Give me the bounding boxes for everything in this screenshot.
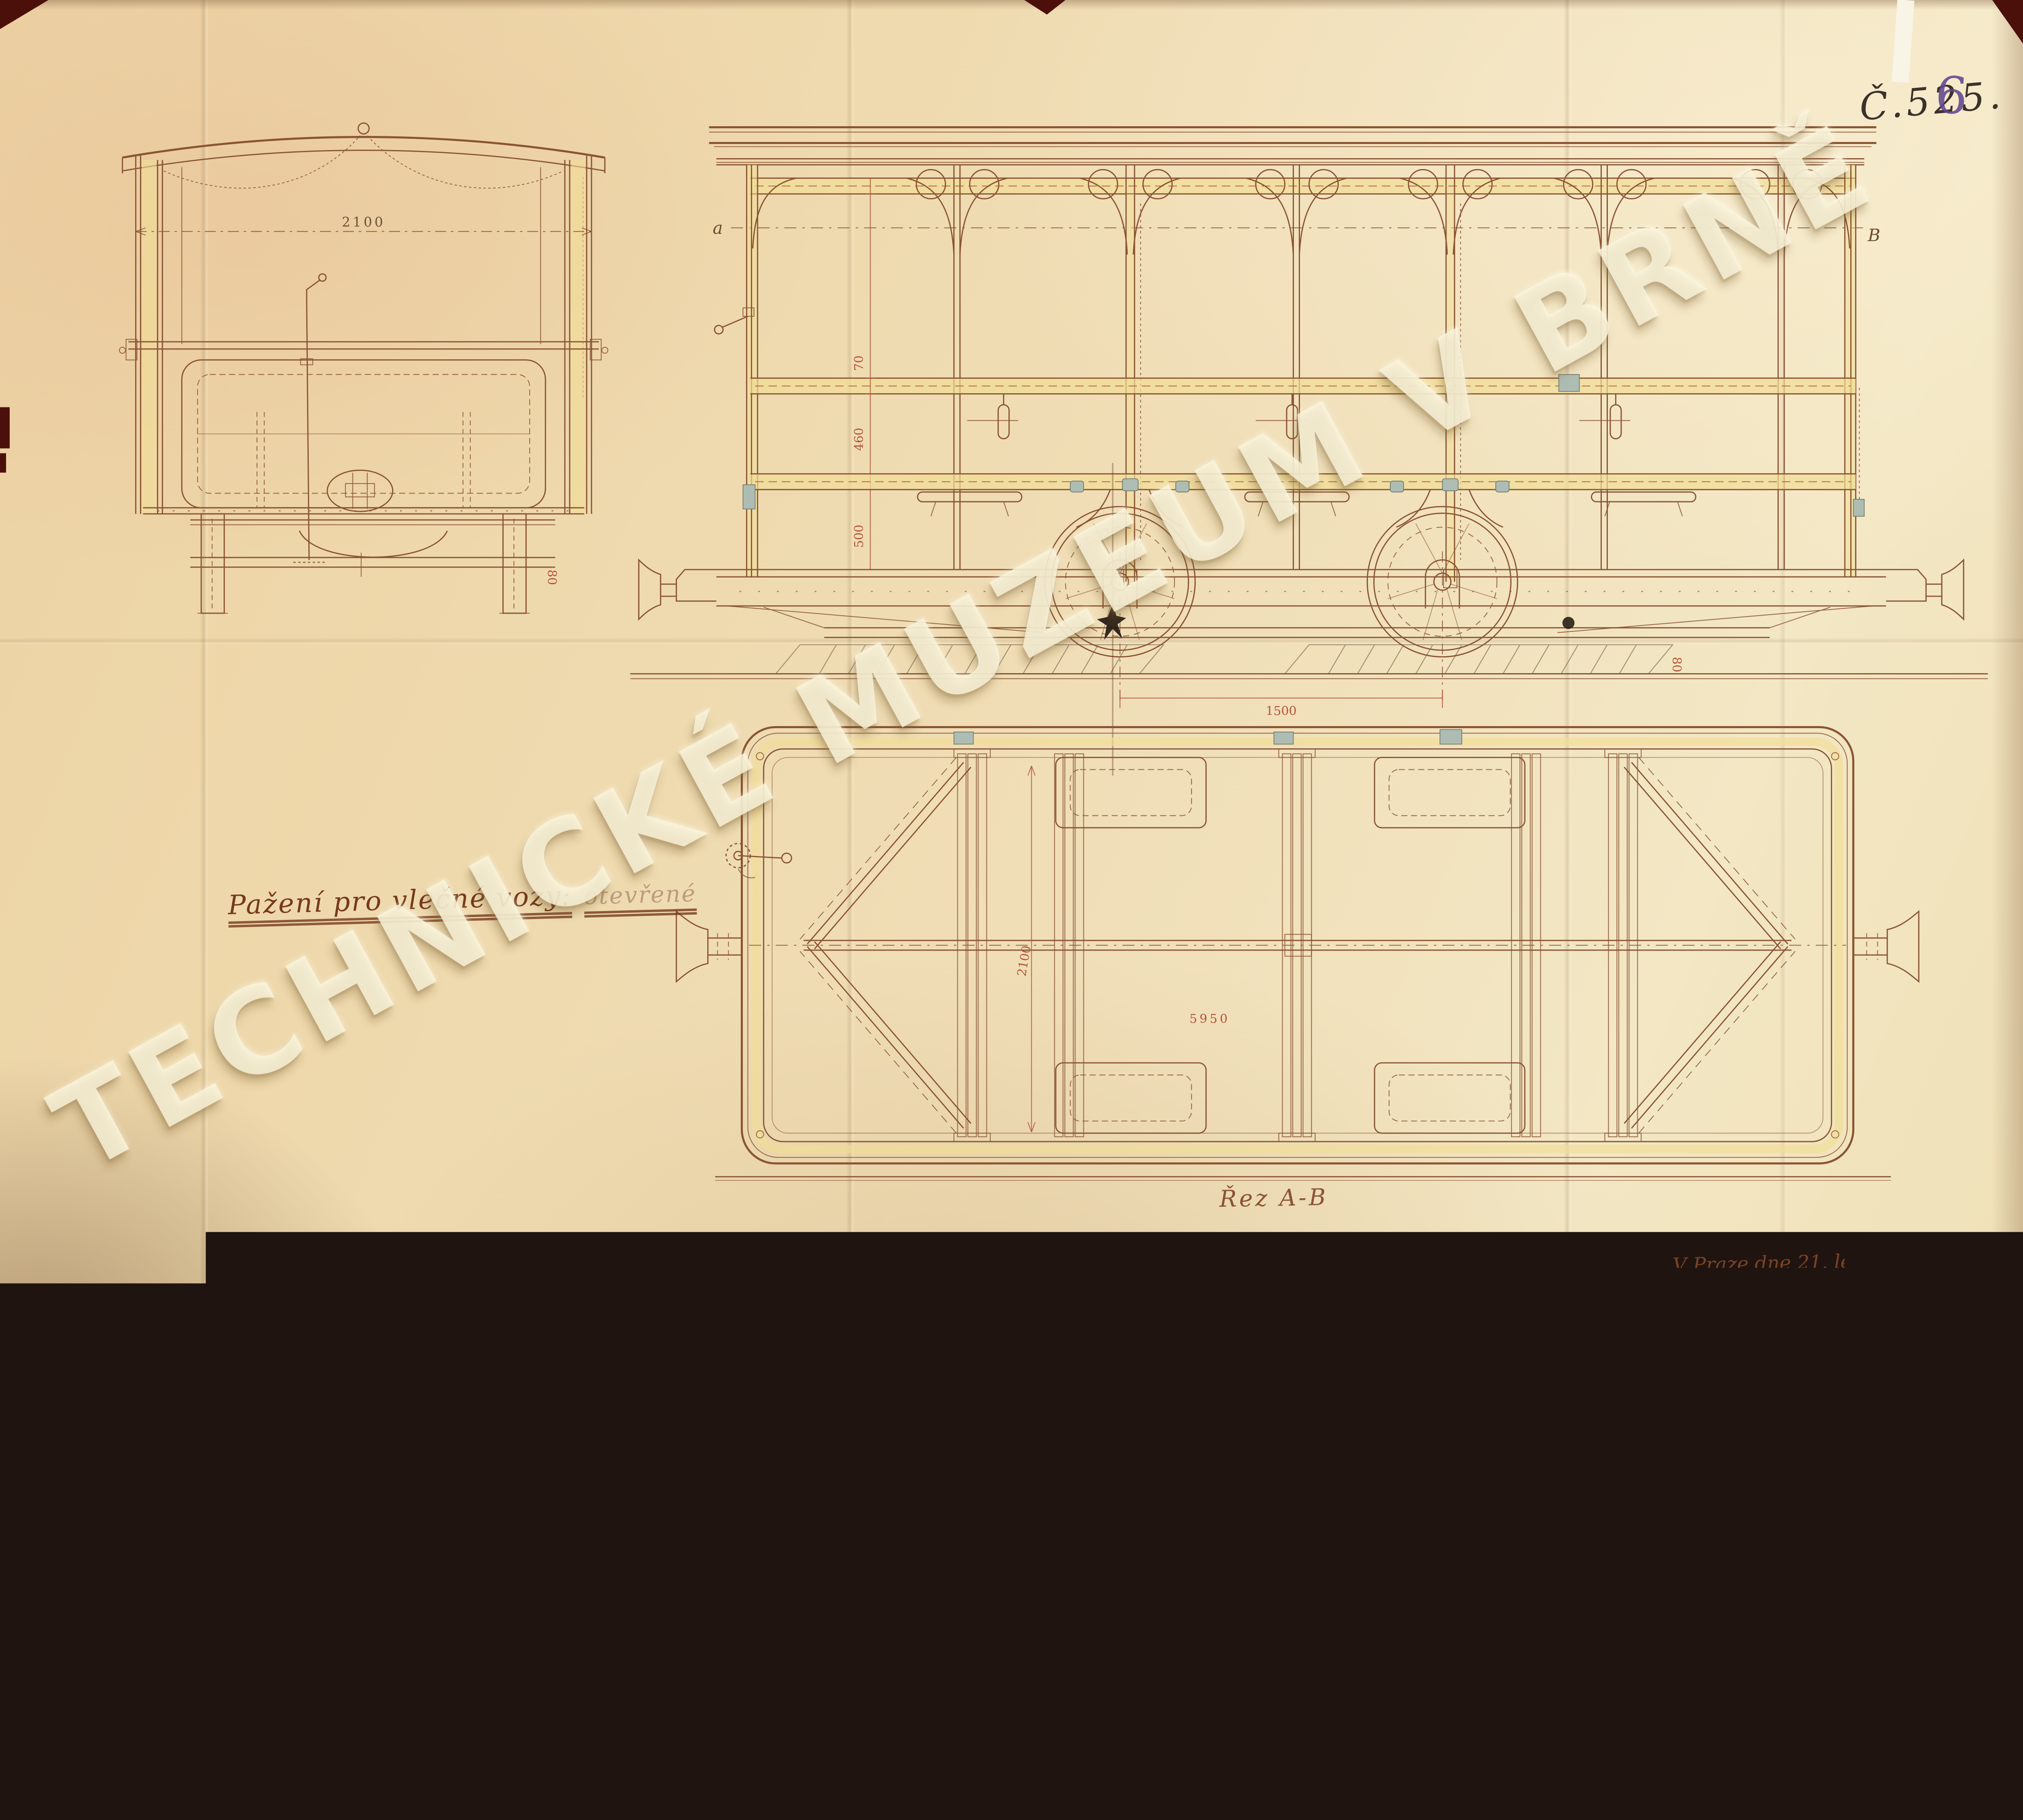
elevation-posts bbox=[746, 165, 1855, 577]
brake-rods bbox=[800, 757, 1795, 1133]
wheelbase-dim: 1500 bbox=[1266, 704, 1296, 718]
plan-view-drawing: 2100 5950 bbox=[676, 727, 1919, 1180]
end-view-drawing: 2100 bbox=[119, 123, 608, 613]
ground-hatch bbox=[776, 645, 1673, 674]
side-elevation-drawing: a B bbox=[630, 127, 1988, 776]
bench-seats bbox=[918, 492, 1696, 516]
drawing-sheet: 2100 bbox=[0, 0, 2023, 1363]
linework-canvas: 2100 bbox=[0, 0, 2023, 1363]
rail-fitting bbox=[1440, 729, 1462, 744]
plan-coupler-left bbox=[676, 911, 742, 982]
end-bracket bbox=[743, 485, 755, 509]
end-view-leg-dim: 80 bbox=[545, 570, 559, 585]
rail-fitting bbox=[954, 732, 973, 744]
section-marker-b: B bbox=[1868, 225, 1881, 245]
rail-fitting bbox=[1274, 732, 1294, 744]
coupler-left bbox=[639, 560, 676, 619]
height-dim-460: 460 bbox=[852, 428, 866, 451]
ink-blot bbox=[1097, 604, 1126, 640]
drawing-number-overwrite: 6 bbox=[1933, 65, 1973, 127]
brake-staffs bbox=[1124, 165, 1461, 588]
section-caption: Řez A-B bbox=[1219, 1184, 1328, 1213]
floor-planks bbox=[954, 749, 1641, 1142]
height-dim-70: 70 bbox=[852, 356, 866, 371]
title-annotation: otevřené bbox=[583, 881, 697, 911]
end-view-width-dim: 2100 bbox=[342, 214, 386, 230]
plan-coupler-right bbox=[1853, 911, 1919, 982]
chain-fitting bbox=[1853, 499, 1864, 516]
coupler-right bbox=[1926, 560, 1964, 619]
plan-length-dim: 5950 bbox=[1190, 1012, 1230, 1026]
offset-dim-80: 80 bbox=[1669, 657, 1684, 672]
section-marker-a: a bbox=[713, 218, 723, 238]
height-dim-500: 500 bbox=[852, 525, 866, 548]
ink-blot bbox=[1563, 617, 1575, 629]
latch-fitting bbox=[1559, 375, 1580, 392]
